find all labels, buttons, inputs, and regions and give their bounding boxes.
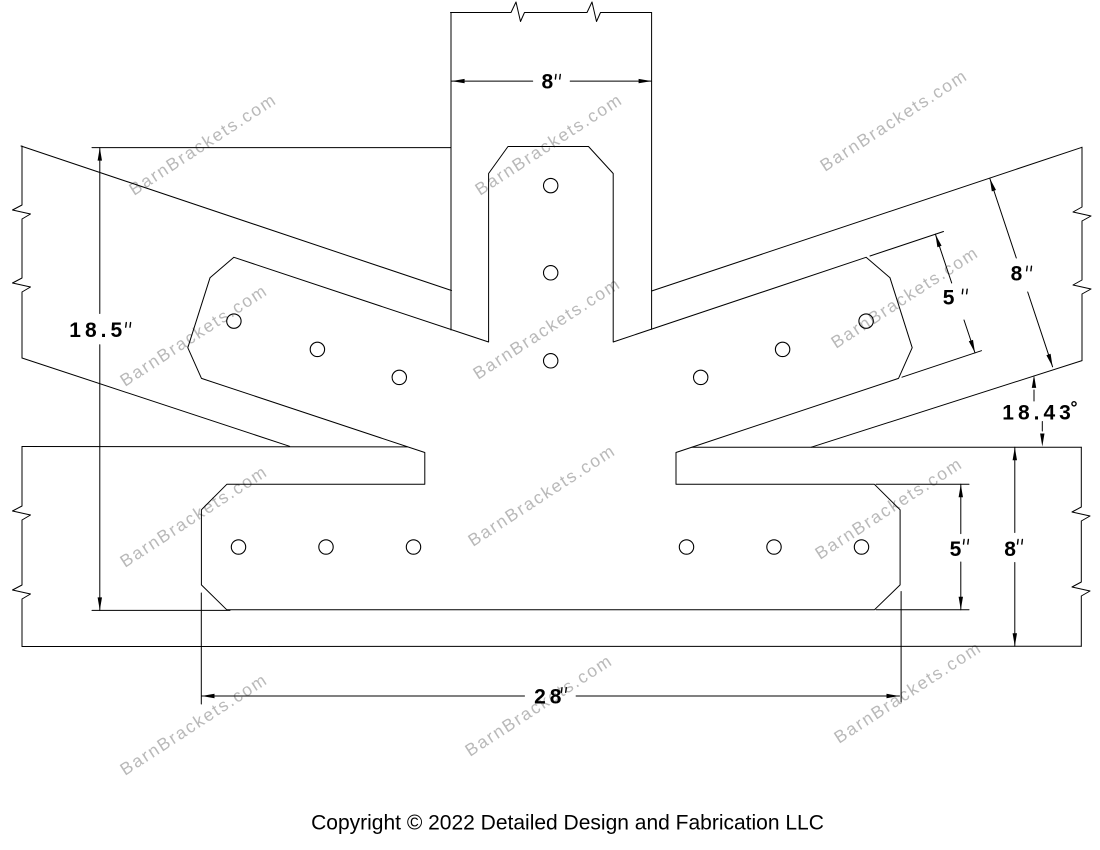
svg-text:BarnBrackets.com: BarnBrackets.com [830,637,985,747]
svg-text:Copyright © 2022 Detailed Desi: Copyright © 2022 Detailed Design and Fab… [311,812,824,835]
svg-text:BarnBrackets.com: BarnBrackets.com [816,65,971,175]
svg-text:5: 5 [950,538,966,561]
svg-text:BarnBrackets.com: BarnBrackets.com [464,440,619,550]
svg-text:BarnBrackets.com: BarnBrackets.com [811,453,966,563]
svg-text:BarnBrackets.com: BarnBrackets.com [116,461,271,571]
svg-text:BarnBrackets.com: BarnBrackets.com [827,242,982,352]
svg-text:BarnBrackets.com: BarnBrackets.com [116,280,271,390]
svg-text:5: 5 [943,287,959,310]
svg-text:8: 8 [542,71,558,94]
svg-text:18.43: 18.43 [1002,402,1075,425]
svg-text:18.5: 18.5 [69,319,126,342]
svg-text:28: 28 [534,686,565,709]
svg-text:BarnBrackets.com: BarnBrackets.com [125,89,280,199]
svg-text:8: 8 [1011,262,1027,285]
svg-text:BarnBrackets.com: BarnBrackets.com [471,89,626,199]
svg-text:BarnBrackets.com: BarnBrackets.com [116,669,271,779]
